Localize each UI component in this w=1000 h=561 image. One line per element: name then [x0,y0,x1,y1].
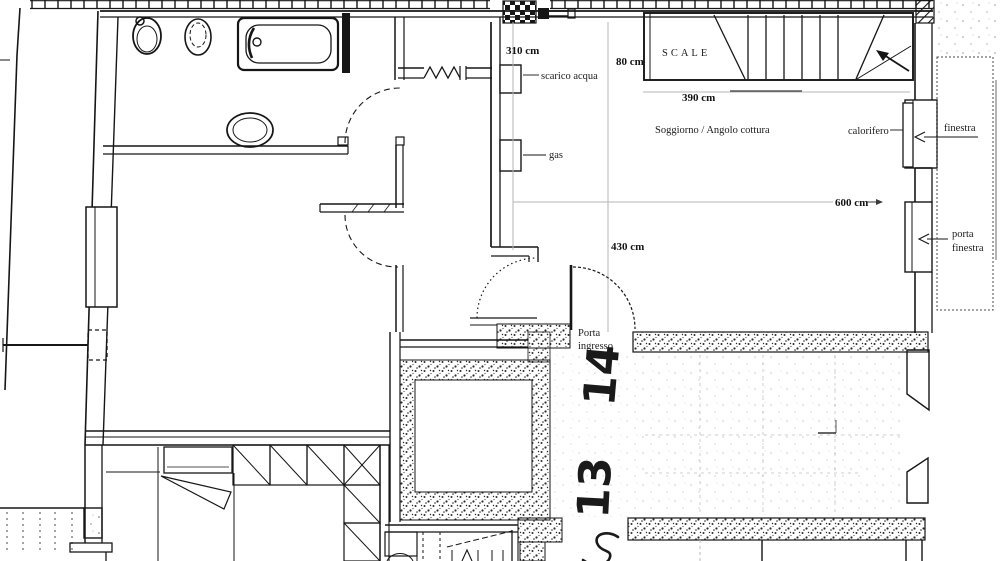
dimension-lines [513,22,910,332]
handwritten-14: 14 [574,343,630,408]
floor-plan-drawing: 310 cm scarico acqua gas 80 cm SCALE 390… [0,0,1000,561]
corner-pillar-icon [916,0,934,23]
bathtub-icon [238,18,338,70]
radiator-box [903,103,913,167]
bathroom [103,13,350,154]
pillar [84,508,102,538]
label-soggiorno: Soggiorno / Angolo cottura [655,125,770,136]
floor-plan: 310 cm scarico acqua gas 80 cm SCALE 390… [0,0,1000,561]
basin-icon [385,532,417,556]
sink-icon [227,113,273,147]
closet-door-swing [345,215,398,267]
label-finestra: finestra [944,123,976,134]
scan-noise [935,0,1000,55]
gas-box [500,140,521,171]
dim-600: 600 cm [835,197,868,209]
dim-80: 80 cm [616,56,644,68]
top-terrace-railing [30,0,933,9]
label-calorifero: calorifero [848,126,889,137]
central-wall [470,17,546,325]
handwritten-13: 13 [568,456,622,520]
left-window-icon [86,207,117,307]
wardrobe-units [233,445,380,561]
bay-lower [907,458,928,503]
hall-wall-lower [628,518,925,540]
label-gas: gas [549,150,563,161]
stair-shaft [385,332,550,532]
label-scale: SCALE [662,48,710,59]
closet-walls [320,145,404,332]
label-porta-finestra-2: finestra [952,243,984,254]
water-drain-box [500,65,521,93]
right-exterior-wall [903,23,978,333]
dim-430: 430 cm [611,241,644,253]
wall-segment [342,13,350,73]
toilet-icon [133,17,161,54]
label-porta-ingresso-1: Porta [578,328,601,339]
entry-door-swing [573,267,635,329]
lower-left-rooms [0,431,390,561]
hall-wall-upper [633,332,928,352]
left-exterior-wall [85,11,118,445]
inner-door-swing [477,258,537,318]
left-property-line [0,8,88,390]
staircase [644,13,913,80]
label-porta-finestra-1: porta [952,229,974,240]
bay-upper [907,350,929,410]
label-scarico-acqua: scarico acqua [541,71,598,82]
french-door-icon [905,202,932,272]
dim-390: 390 cm [682,92,715,104]
balcony [937,57,996,310]
dim-310: 310 cm [506,45,539,57]
corridor-walls [338,17,492,145]
stair-direction-arrow-icon [876,50,909,71]
handwritten-squiggle [583,533,618,561]
bidet-icon [185,19,211,55]
bed [161,447,232,509]
radiator-symbol-icon [424,67,460,78]
wall-recess [88,330,107,360]
bathroom-door-swing [345,88,400,143]
masonry-pillar-icon [503,1,536,23]
